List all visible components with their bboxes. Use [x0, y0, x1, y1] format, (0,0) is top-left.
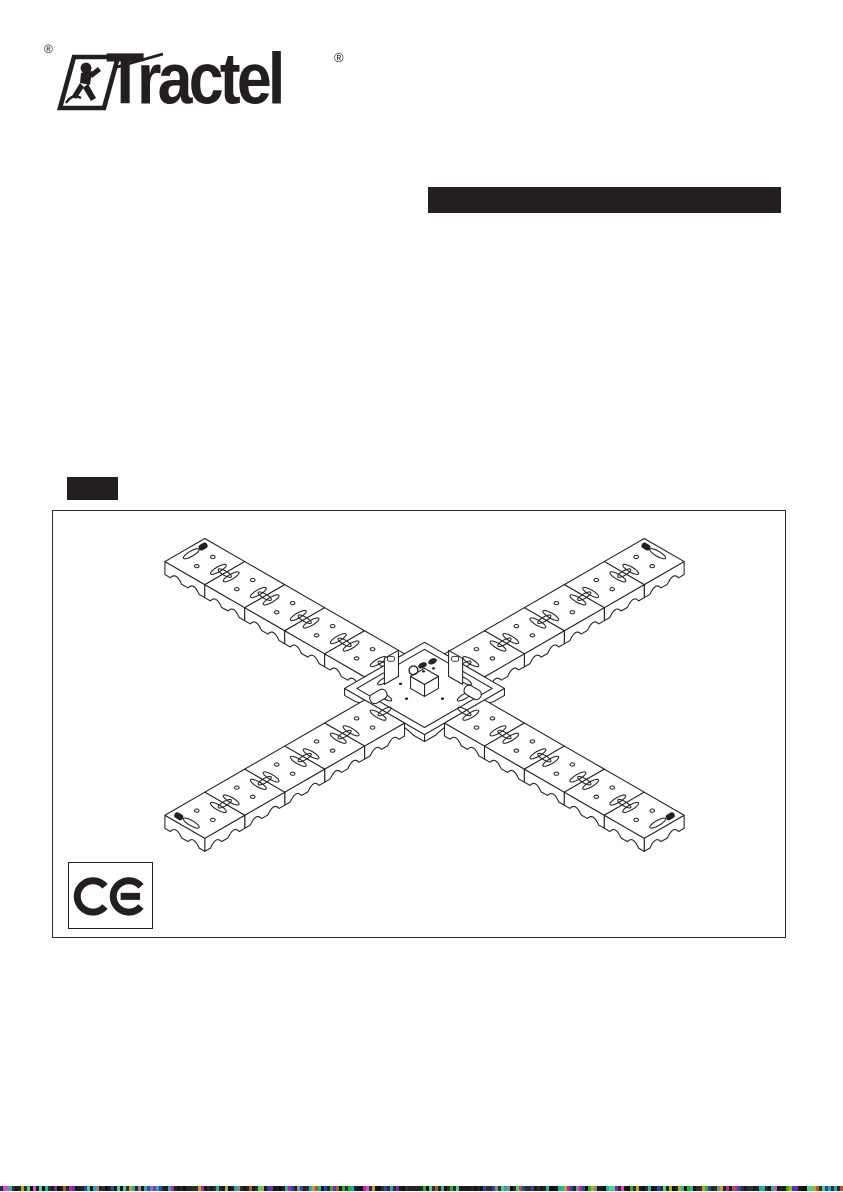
figure-frame — [52, 510, 786, 938]
ce-mark-box — [68, 862, 153, 929]
title-bar — [428, 187, 781, 213]
language-badge — [67, 477, 118, 500]
document-page: ® Tractel ® — [0, 0, 843, 1192]
scan-noise-strip — [0, 1186, 843, 1191]
logo-wordmark: Tractel — [106, 42, 282, 115]
ce-mark-icon — [69, 863, 152, 928]
registered-mark-icon: ® — [334, 50, 344, 65]
product-illustration — [53, 511, 785, 937]
tractel-logo: ® Tractel ® — [44, 42, 364, 120]
